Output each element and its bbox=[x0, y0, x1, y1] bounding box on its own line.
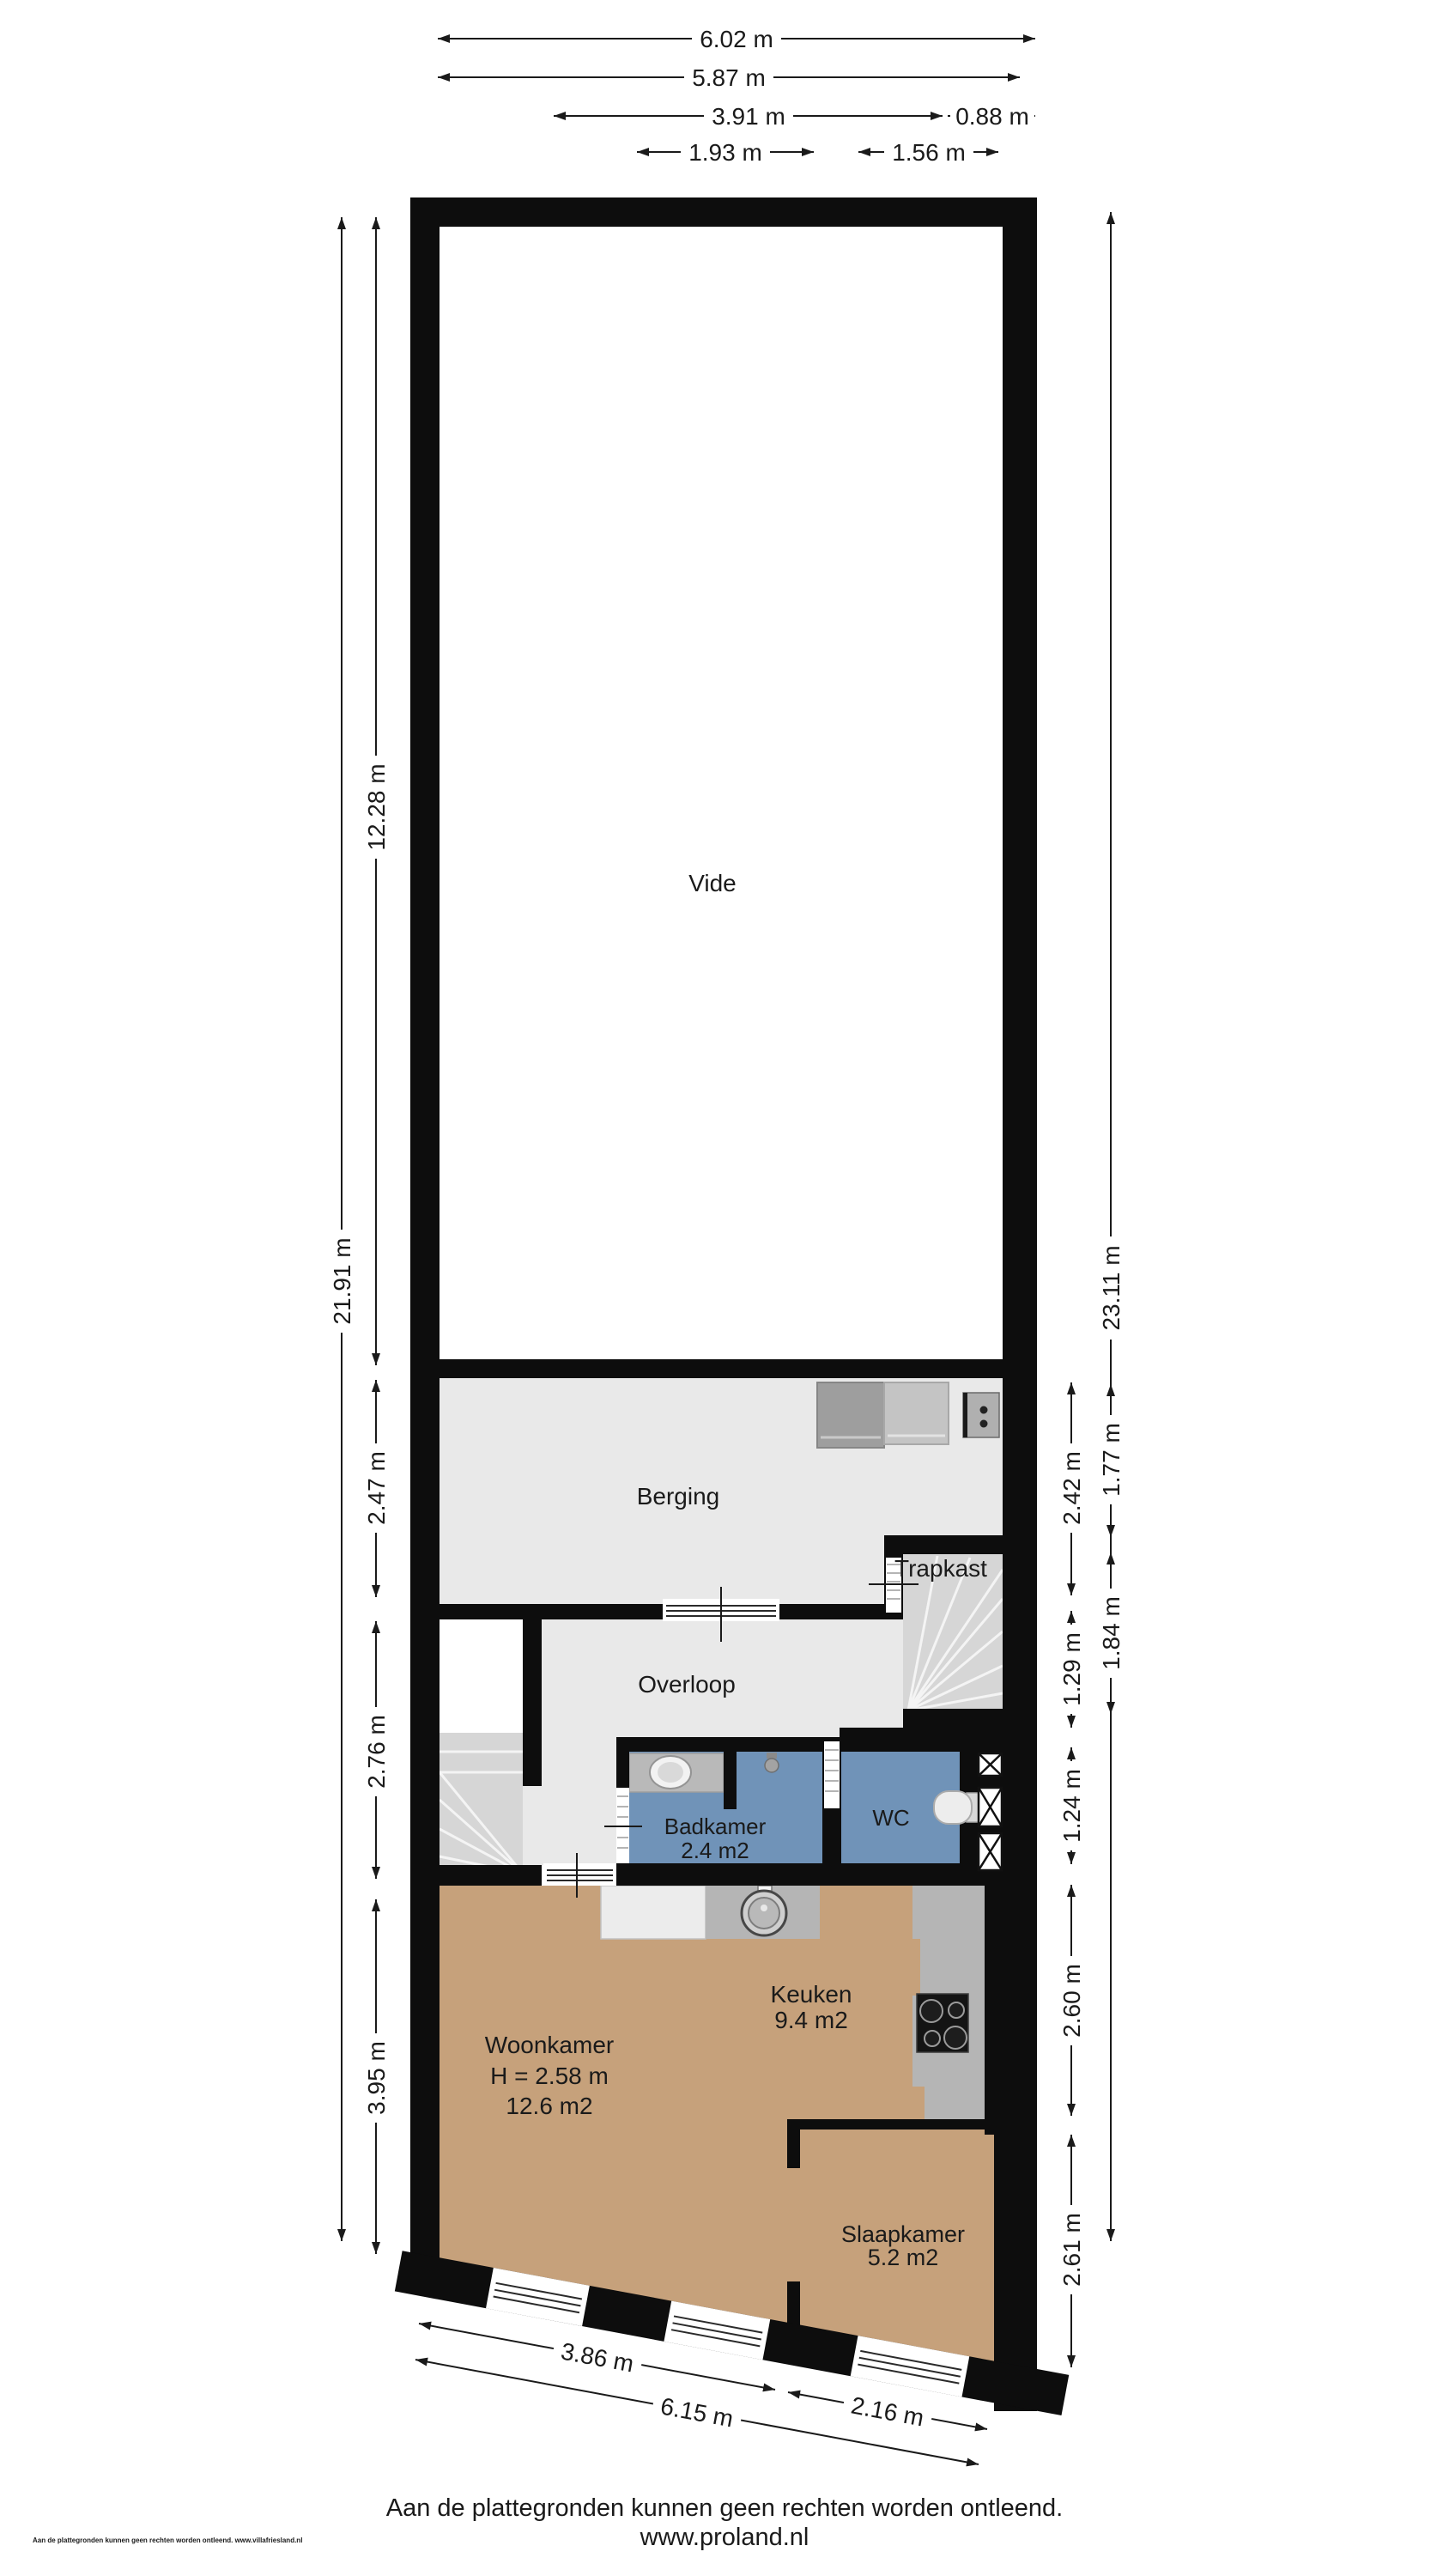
label-trapkast: Trapkast bbox=[894, 1555, 987, 1582]
shower-icon bbox=[765, 1753, 779, 1772]
dim-top-156: 1.56 m bbox=[858, 138, 998, 166]
wall-berging-overloop-left bbox=[410, 1604, 663, 1619]
dim-top-088: 0.88 m bbox=[948, 102, 1035, 130]
wall-vide-berging bbox=[410, 1359, 1037, 1378]
svg-text:2.47 m: 2.47 m bbox=[363, 1451, 390, 1525]
dim-right-261: 2.61 m bbox=[1058, 2135, 1085, 2367]
shaft-icon bbox=[979, 1753, 1002, 1870]
label-slaapkamer: Slaapkamer bbox=[841, 2221, 965, 2247]
svg-text:3.95 m: 3.95 m bbox=[363, 2041, 390, 2115]
wall-stairwell-bottom bbox=[440, 1865, 542, 1886]
room-vide-floor bbox=[440, 227, 1003, 1359]
svg-text:1.77 m: 1.77 m bbox=[1098, 1423, 1125, 1497]
dim-right-242: 2.42 m bbox=[1058, 1382, 1085, 1595]
dim-left-247: 2.47 m bbox=[362, 1380, 390, 1597]
wall-right-upper bbox=[1003, 197, 1037, 1886]
svg-text:1.24 m: 1.24 m bbox=[1058, 1769, 1085, 1843]
label-overloop: Overloop bbox=[638, 1671, 736, 1698]
svg-text:2.76 m: 2.76 m bbox=[363, 1715, 390, 1789]
wall-trapkast-top bbox=[884, 1535, 1003, 1554]
svg-text:6.02 m: 6.02 m bbox=[700, 26, 773, 52]
footer-website: www.proland.nl bbox=[640, 2524, 809, 2551]
wall-shower-divider bbox=[724, 1752, 737, 1809]
wall-slaapkamer-stub-upper bbox=[787, 2119, 800, 2168]
svg-text:21.91 m: 21.91 m bbox=[329, 1237, 355, 1324]
wall-top bbox=[410, 197, 1037, 227]
label-woonkamer: Woonkamer bbox=[485, 2032, 614, 2058]
svg-text:1.29 m: 1.29 m bbox=[1058, 1632, 1085, 1706]
dim-right-184: 1.84 m bbox=[1097, 1552, 1125, 1714]
wall-left bbox=[410, 197, 440, 2286]
wall-overloop-woonkamer bbox=[616, 1863, 1003, 1886]
svg-text:23.11 m: 23.11 m bbox=[1098, 1245, 1125, 1330]
svg-text:12.28 m: 12.28 m bbox=[363, 763, 390, 850]
dim-top-602: 6.02 m bbox=[438, 25, 1035, 52]
footer-disclaimer: Aan de plattegronden kunnen geen rechten… bbox=[386, 2494, 1063, 2522]
toilet-icon bbox=[934, 1791, 980, 1824]
label-woonkamer-height: H = 2.58 m bbox=[490, 2063, 609, 2089]
counter-notch-upper bbox=[912, 1939, 920, 1996]
wall-keuken-slaapkamer bbox=[787, 2119, 994, 2129]
dim-right-129: 1.29 m bbox=[1058, 1611, 1085, 1728]
svg-text:2.42 m: 2.42 m bbox=[1058, 1451, 1085, 1525]
counter-notch-lower bbox=[912, 2087, 925, 2121]
bathroom-sink-icon bbox=[629, 1753, 724, 1792]
wall-berging-overloop-right bbox=[779, 1604, 884, 1619]
boiler-icon bbox=[963, 1393, 999, 1437]
svg-text:2.61 m: 2.61 m bbox=[1058, 2213, 1085, 2287]
dim-left-276: 2.76 m bbox=[362, 1621, 390, 1879]
dim-left-2191: 21.91 m bbox=[328, 217, 355, 2241]
floorplan-drawing: Vide Berging Trapkast Overloop Badkamer … bbox=[0, 0, 1449, 2576]
stairwell-void bbox=[440, 1619, 523, 1733]
label-woonkamer-area: 12.6 m2 bbox=[506, 2093, 592, 2119]
wall-badkamer-top bbox=[616, 1737, 827, 1752]
stairs-left-winder bbox=[440, 1733, 523, 1874]
wall-right-mid bbox=[985, 1886, 1037, 2135]
kitchen-worktop-white bbox=[601, 1886, 706, 1939]
svg-text:5.87 m: 5.87 m bbox=[692, 64, 766, 91]
svg-text:2.60 m: 2.60 m bbox=[1058, 1964, 1085, 2038]
label-vide: Vide bbox=[688, 870, 737, 896]
dim-left-1228: 12.28 m bbox=[362, 217, 390, 1365]
wall-stairwell-right bbox=[523, 1619, 542, 1786]
dim-right-260: 2.60 m bbox=[1058, 1885, 1085, 2116]
dryer-icon bbox=[884, 1382, 949, 1444]
dim-top-391: 3.91 m bbox=[554, 102, 943, 130]
dim-right-177: 1.77 m bbox=[1097, 1384, 1125, 1537]
label-badkamer: Badkamer bbox=[664, 1814, 767, 1839]
stove-icon bbox=[917, 1994, 968, 2052]
svg-text:2.16 m: 2.16 m bbox=[849, 2391, 926, 2431]
label-wc: WC bbox=[872, 1805, 909, 1831]
svg-text:0.88 m: 0.88 m bbox=[955, 103, 1029, 130]
svg-text:1.56 m: 1.56 m bbox=[892, 139, 966, 166]
footer-small-print: Aan de plattegronden kunnen geen rechten… bbox=[33, 2537, 302, 2544]
label-berging: Berging bbox=[637, 1483, 720, 1510]
dim-top-193: 1.93 m bbox=[637, 138, 814, 166]
washing-machine-icon bbox=[817, 1382, 884, 1448]
svg-text:3.91 m: 3.91 m bbox=[712, 103, 785, 130]
label-badkamer-area: 2.4 m2 bbox=[681, 1838, 749, 1863]
dim-right-2311: 23.11 m bbox=[1097, 212, 1125, 2241]
dim-right-124: 1.24 m bbox=[1058, 1747, 1085, 1864]
dim-left-395: 3.95 m bbox=[362, 1899, 390, 2254]
door-wc bbox=[824, 1741, 840, 1808]
label-keuken: Keuken bbox=[771, 1981, 852, 2008]
svg-text:3.86 m: 3.86 m bbox=[559, 2337, 636, 2377]
label-slaapkamer-area: 5.2 m2 bbox=[868, 2245, 939, 2270]
svg-text:1.93 m: 1.93 m bbox=[688, 139, 762, 166]
wall-badkamer-left-upper bbox=[616, 1737, 629, 1788]
svg-text:1.84 m: 1.84 m bbox=[1098, 1596, 1125, 1670]
wall-trapkast-bottom bbox=[903, 1709, 1003, 1728]
dim-top-587: 5.87 m bbox=[438, 64, 1020, 91]
svg-text:6.15 m: 6.15 m bbox=[658, 2392, 736, 2432]
floorplan-page: Vide Berging Trapkast Overloop Badkamer … bbox=[0, 0, 1449, 2576]
label-keuken-area: 9.4 m2 bbox=[774, 2007, 848, 2033]
